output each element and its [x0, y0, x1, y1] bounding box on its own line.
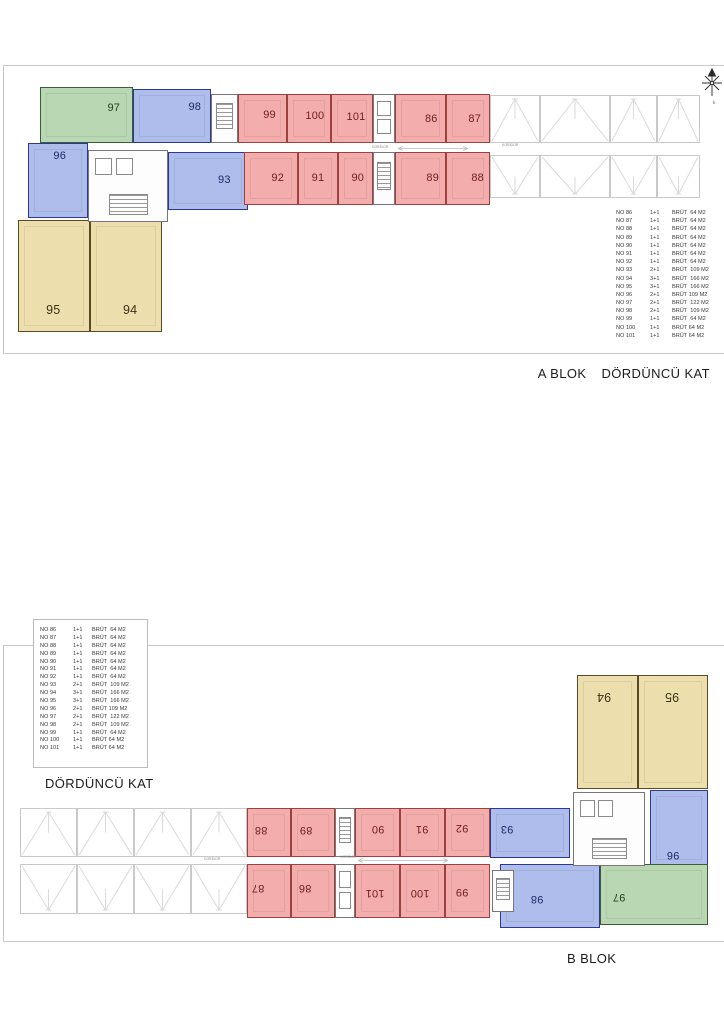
- terrace-cell-b-1: [77, 808, 134, 857]
- terrace-cell-a-1: [540, 95, 610, 143]
- unit-number-86-b: 86: [299, 882, 312, 894]
- legend-area: BRÜT 64 M2: [92, 635, 150, 643]
- legend-row-no-96: NO 962+1BRÜT 109 M2: [616, 291, 724, 299]
- legend-no: NO 99: [616, 315, 650, 323]
- legend-plan: 1+1: [650, 225, 672, 233]
- a-blok-label: A BLOK: [538, 366, 587, 381]
- legend-area: BRÜT 64 M2: [672, 234, 724, 242]
- legend-row-no-99: NO 991+1BRÜT 64 M2: [616, 315, 724, 323]
- legend-row-no-95: NO 953+1BRÜT 166 M2: [40, 698, 150, 706]
- legend-plan: 1+1: [650, 258, 672, 266]
- legend-area: BRÜT 64 M2: [672, 242, 724, 250]
- elevator-icon: [339, 892, 352, 909]
- legend-no: NO 97: [40, 714, 73, 722]
- unit-number-86-a: 86: [425, 113, 438, 125]
- corridor-arrow-a: [398, 146, 468, 151]
- unit-87-b: 87: [247, 864, 291, 918]
- a-floor-label: DÖRDÜNCÜ KAT: [601, 366, 710, 381]
- unit-number-100-b: 100: [410, 887, 429, 899]
- legend-plan: 1+1: [73, 730, 92, 738]
- unit-97-b: 97: [600, 864, 708, 925]
- legend-area: BRÜT 166 M2: [672, 275, 724, 283]
- legend-row-no-98: NO 982+1BRÜT 109 M2: [616, 307, 724, 315]
- unit-number-90-b: 90: [372, 823, 385, 835]
- legend-no: NO 93: [616, 266, 650, 274]
- legend-row-no-87: NO 871+1BRÜT 64 M2: [616, 217, 724, 225]
- corridor-label-a-0: KORİDOR: [372, 145, 388, 149]
- b-floor-caption: DÖRDÜNCÜ KAT: [45, 776, 154, 791]
- legend-no: NO 88: [40, 643, 73, 651]
- legend-no: NO 100: [616, 324, 650, 332]
- legend-plan: 2+1: [650, 291, 672, 299]
- elevator-icon: [377, 101, 391, 116]
- legend-area: BRÜT 64 M2: [92, 627, 150, 635]
- legend-area: BRÜT 64 M2: [672, 324, 724, 332]
- unit-number-91-a: 91: [312, 172, 325, 184]
- elevator-icon: [116, 158, 133, 175]
- terrace-cell-b-2: [134, 808, 191, 857]
- unit-86-a: 86: [395, 94, 446, 143]
- legend-plan: 1+1: [73, 737, 92, 745]
- unit-100-b: 100: [400, 864, 445, 918]
- legend-row-no-88: NO 881+1BRÜT 64 M2: [40, 643, 150, 651]
- terrace-cell-a-3: [657, 95, 700, 143]
- legend-area: BRÜT 64 M2: [92, 651, 150, 659]
- unit-number-95-b: 95: [665, 690, 679, 704]
- legend-area: BRÜT 122 M2: [92, 714, 150, 722]
- unit-number-101-a: 101: [347, 111, 366, 123]
- legend-plan: 1+1: [73, 659, 92, 667]
- legend-no: NO 98: [616, 307, 650, 315]
- legend-row-no-101: NO 1011+1BRÜT 64 M2: [40, 745, 150, 753]
- apartment-legend-b: NO 861+1BRÜT 64 M2NO 871+1BRÜT 64 M2NO 8…: [40, 627, 150, 753]
- stair-icon: [592, 838, 627, 860]
- legend-area: BRÜT 64 M2: [92, 643, 150, 651]
- unit-91-a: 91: [298, 152, 338, 205]
- unit-number-101-b: 101: [365, 887, 384, 899]
- legend-area: BRÜT 109 M2: [92, 722, 150, 730]
- legend-plan: 1+1: [73, 627, 92, 635]
- core-stair-a-3: [373, 152, 395, 205]
- terrace-cell-b-5: [77, 864, 134, 914]
- unit-93-b: 93: [490, 808, 570, 858]
- legend-row-no-89: NO 891+1BRÜT 64 M2: [616, 234, 724, 242]
- legend-row-no-91: NO 911+1BRÜT 64 M2: [616, 250, 724, 258]
- unit-number-92-b: 92: [456, 822, 469, 834]
- core-stair-a-0: [211, 94, 238, 143]
- unit-94-a: 94: [90, 220, 162, 332]
- legend-no: NO 92: [40, 674, 73, 682]
- terrace-cell-a-0: [490, 95, 540, 143]
- legend-plan: 3+1: [650, 275, 672, 283]
- elevator-icon: [598, 800, 613, 817]
- unit-94-b: 94: [577, 675, 638, 789]
- unit-number-99-b: 99: [456, 886, 469, 898]
- unit-number-91-b: 91: [416, 823, 429, 835]
- corridor-label-b-0: KORİDOR: [204, 857, 220, 861]
- legend-no: NO 94: [616, 275, 650, 283]
- legend-row-no-98: NO 982+1BRÜT 109 M2: [40, 722, 150, 730]
- elevator-icon: [377, 119, 391, 134]
- legend-plan: 1+1: [650, 324, 672, 332]
- unit-91-b: 91: [400, 808, 445, 857]
- legend-plan: 2+1: [73, 722, 92, 730]
- terrace-cell-a-4: [490, 155, 540, 198]
- elevator-icon: [580, 800, 595, 817]
- unit-number-99-a: 99: [263, 109, 276, 121]
- legend-plan: 1+1: [73, 651, 92, 659]
- legend-no: NO 91: [616, 250, 650, 258]
- unit-number-88-a: 88: [471, 172, 484, 184]
- legend-plan: 1+1: [650, 217, 672, 225]
- unit-number-88-b: 88: [254, 824, 267, 836]
- terrace-cell-a-5: [540, 155, 610, 198]
- unit-number-96-a: 96: [53, 150, 66, 162]
- unit-number-98-b: 98: [531, 893, 544, 905]
- legend-area: BRÜT 64 M2: [672, 250, 724, 258]
- corridor-label-b-1: KORİDOR: [340, 855, 356, 859]
- legend-plan: 1+1: [73, 745, 92, 753]
- unit-101-b: 101: [355, 864, 400, 918]
- legend-area: BRÜT 109 M2: [672, 307, 724, 315]
- legend-no: NO 91: [40, 666, 73, 674]
- legend-no: NO 96: [616, 291, 650, 299]
- unit-89-b: 89: [291, 808, 335, 857]
- unit-95-a: 95: [18, 220, 90, 332]
- legend-area: BRÜT 109 M2: [92, 706, 150, 714]
- legend-no: NO 100: [40, 737, 73, 745]
- legend-row-no-89: NO 891+1BRÜT 64 M2: [40, 651, 150, 659]
- legend-plan: 2+1: [650, 307, 672, 315]
- legend-no: NO 90: [40, 659, 73, 667]
- unit-88-b: 88: [247, 808, 291, 857]
- legend-row-no-97: NO 972+1BRÜT 122 M2: [40, 714, 150, 722]
- terrace-cell-a-2: [610, 95, 657, 143]
- legend-plan: 3+1: [650, 283, 672, 291]
- legend-no: NO 94: [40, 690, 73, 698]
- unit-number-98-a: 98: [188, 101, 201, 113]
- legend-row-no-101: NO 1011+1BRÜT 64 M2: [616, 332, 724, 340]
- unit-95-b: 95: [638, 675, 708, 789]
- unit-number-93-a: 93: [218, 174, 231, 186]
- legend-area: BRÜT 64 M2: [672, 258, 724, 266]
- legend-plan: 1+1: [73, 666, 92, 674]
- legend-no: NO 97: [616, 299, 650, 307]
- legend-row-no-100: NO 1001+1BRÜT 64 M2: [616, 324, 724, 332]
- legend-plan: 1+1: [73, 643, 92, 651]
- stair-icon: [496, 878, 510, 900]
- legend-row-no-93: NO 932+1BRÜT 109 M2: [40, 682, 150, 690]
- legend-area: BRÜT 109 M2: [92, 682, 150, 690]
- legend-plan: 1+1: [650, 332, 672, 340]
- legend-area: BRÜT 166 M2: [672, 283, 724, 291]
- legend-plan: 2+1: [73, 706, 92, 714]
- legend-no: NO 96: [40, 706, 73, 714]
- unit-number-97-a: 97: [107, 102, 120, 114]
- unit-90-a: 90: [338, 152, 373, 205]
- terrace-cell-a-7: [657, 155, 700, 198]
- unit-90-b: 90: [355, 808, 400, 857]
- legend-area: BRÜT 64 M2: [672, 209, 724, 217]
- legend-area: BRÜT 122 M2: [672, 299, 724, 307]
- legend-row-no-93: NO 932+1BRÜT 109 M2: [616, 266, 724, 274]
- legend-no: NO 93: [40, 682, 73, 690]
- legend-plan: 2+1: [73, 714, 92, 722]
- legend-area: BRÜT 64 M2: [672, 315, 724, 323]
- corridor-arrow-b: [358, 858, 448, 863]
- unit-92-b: 92: [445, 808, 490, 857]
- unit-number-94-a: 94: [123, 303, 137, 317]
- legend-no: NO 92: [616, 258, 650, 266]
- legend-area: BRÜT 64 M2: [672, 225, 724, 233]
- legend-area: BRÜT 64 M2: [92, 745, 150, 753]
- legend-area: BRÜT 64 M2: [672, 332, 724, 340]
- unit-number-87-a: 87: [468, 113, 481, 125]
- legend-row-no-86: NO 861+1BRÜT 64 M2: [616, 209, 724, 217]
- unit-96-b: 96: [650, 790, 708, 866]
- core-lift-b-2: [335, 864, 355, 918]
- stair-icon: [339, 817, 352, 843]
- unit-93-a: 93: [168, 152, 248, 210]
- unit-number-96-b: 96: [667, 849, 680, 861]
- unit-number-92-a: 92: [271, 172, 284, 184]
- svg-text:k: k: [713, 100, 716, 105]
- legend-plan: 2+1: [650, 299, 672, 307]
- unit-number-89-a: 89: [426, 172, 439, 184]
- unit-87-a: 87: [446, 94, 490, 143]
- unit-99-b: 99: [445, 864, 490, 918]
- legend-row-no-86: NO 861+1BRÜT 64 M2: [40, 627, 150, 635]
- unit-number-90-a: 90: [351, 172, 364, 184]
- core-lobby-a-2: [88, 150, 168, 222]
- stair-icon: [216, 103, 234, 129]
- legend-no: NO 88: [616, 225, 650, 233]
- unit-86-b: 86: [291, 864, 335, 918]
- legend-plan: 1+1: [650, 242, 672, 250]
- unit-101-a: 101: [331, 94, 373, 143]
- legend-no: NO 87: [40, 635, 73, 643]
- legend-area: BRÜT 166 M2: [92, 690, 150, 698]
- legend-plan: 2+1: [73, 682, 92, 690]
- unit-97-a: 97: [40, 87, 133, 143]
- legend-no: NO 89: [616, 234, 650, 242]
- legend-no: NO 86: [40, 627, 73, 635]
- legend-plan: 3+1: [73, 690, 92, 698]
- legend-plan: 2+1: [650, 266, 672, 274]
- legend-no: NO 95: [40, 698, 73, 706]
- legend-plan: 1+1: [650, 250, 672, 258]
- legend-no: NO 101: [616, 332, 650, 340]
- terrace-cell-b-0: [20, 808, 77, 857]
- unit-number-87-b: 87: [251, 882, 264, 894]
- terrace-cell-b-3: [191, 808, 247, 857]
- unit-92-a: 92: [244, 152, 298, 205]
- unit-number-94-b: 94: [597, 690, 611, 704]
- unit-98-a: 98: [133, 89, 211, 143]
- legend-no: NO 101: [40, 745, 73, 753]
- legend-plan: 1+1: [73, 635, 92, 643]
- unit-98-b: 98: [500, 864, 600, 928]
- floorplan-page: { "captions": { "a_block": "A BLOK", "a_…: [0, 0, 724, 1024]
- legend-row-no-90: NO 901+1BRÜT 64 M2: [616, 242, 724, 250]
- unit-number-93-b: 93: [501, 823, 514, 835]
- core-lift-a-1: [373, 94, 395, 143]
- legend-area: BRÜT 64 M2: [672, 217, 724, 225]
- unit-number-95-a: 95: [46, 303, 60, 317]
- unit-89-a: 89: [395, 152, 446, 205]
- legend-row-no-95: NO 953+1BRÜT 166 M2: [616, 283, 724, 291]
- b-blok-caption: B BLOK: [567, 951, 616, 966]
- legend-row-no-97: NO 972+1BRÜT 122 M2: [616, 299, 724, 307]
- legend-area: BRÜT 166 M2: [92, 698, 150, 706]
- elevator-icon: [339, 871, 352, 888]
- unit-number-100-a: 100: [305, 110, 324, 122]
- corridor-label-a-1: KORİDOR: [502, 143, 518, 147]
- apartment-legend-a: NO 861+1BRÜT 64 M2NO 871+1BRÜT 64 M2NO 8…: [616, 209, 724, 340]
- unit-88-a: 88: [446, 152, 490, 205]
- legend-plan: 1+1: [650, 234, 672, 242]
- legend-no: NO 99: [40, 730, 73, 738]
- terrace-cell-b-6: [134, 864, 191, 914]
- legend-row-no-96: NO 962+1BRÜT 109 M2: [40, 706, 150, 714]
- terrace-cell-b-4: [20, 864, 77, 914]
- north-arrow-icon: k: [700, 68, 724, 106]
- unit-96-a: 96: [28, 143, 88, 218]
- elevator-icon: [95, 158, 112, 175]
- legend-row-no-88: NO 881+1BRÜT 64 M2: [616, 225, 724, 233]
- unit-99-a: 99: [238, 94, 287, 143]
- core-lobby-b-1: [573, 792, 645, 866]
- legend-plan: 1+1: [650, 315, 672, 323]
- legend-no: NO 86: [616, 209, 650, 217]
- stair-icon: [109, 194, 148, 215]
- unit-number-97-b: 97: [613, 891, 626, 903]
- stair-icon: [377, 162, 391, 190]
- legend-row-no-94: NO 943+1BRÜT 166 M2: [616, 275, 724, 283]
- a-blok-caption: A BLOK DÖRDÜNCÜ KAT: [538, 366, 710, 381]
- legend-plan: 1+1: [73, 674, 92, 682]
- legend-no: NO 89: [40, 651, 73, 659]
- legend-no: NO 90: [616, 242, 650, 250]
- core-stair-b-3: [492, 870, 514, 912]
- legend-row-no-87: NO 871+1BRÜT 64 M2: [40, 635, 150, 643]
- legend-row-no-94: NO 943+1BRÜT 166 M2: [40, 690, 150, 698]
- legend-no: NO 87: [616, 217, 650, 225]
- unit-100-a: 100: [287, 94, 331, 143]
- legend-no: NO 98: [40, 722, 73, 730]
- terrace-cell-b-7: [191, 864, 247, 914]
- terrace-cell-a-6: [610, 155, 657, 198]
- legend-area: BRÜT 109 M2: [672, 266, 724, 274]
- legend-row-no-92: NO 921+1BRÜT 64 M2: [616, 258, 724, 266]
- unit-number-89-b: 89: [300, 824, 313, 836]
- legend-plan: 3+1: [73, 698, 92, 706]
- core-stair-b-0: [335, 808, 355, 857]
- legend-no: NO 95: [616, 283, 650, 291]
- legend-plan: 1+1: [650, 209, 672, 217]
- legend-area: BRÜT 109 M2: [672, 291, 724, 299]
